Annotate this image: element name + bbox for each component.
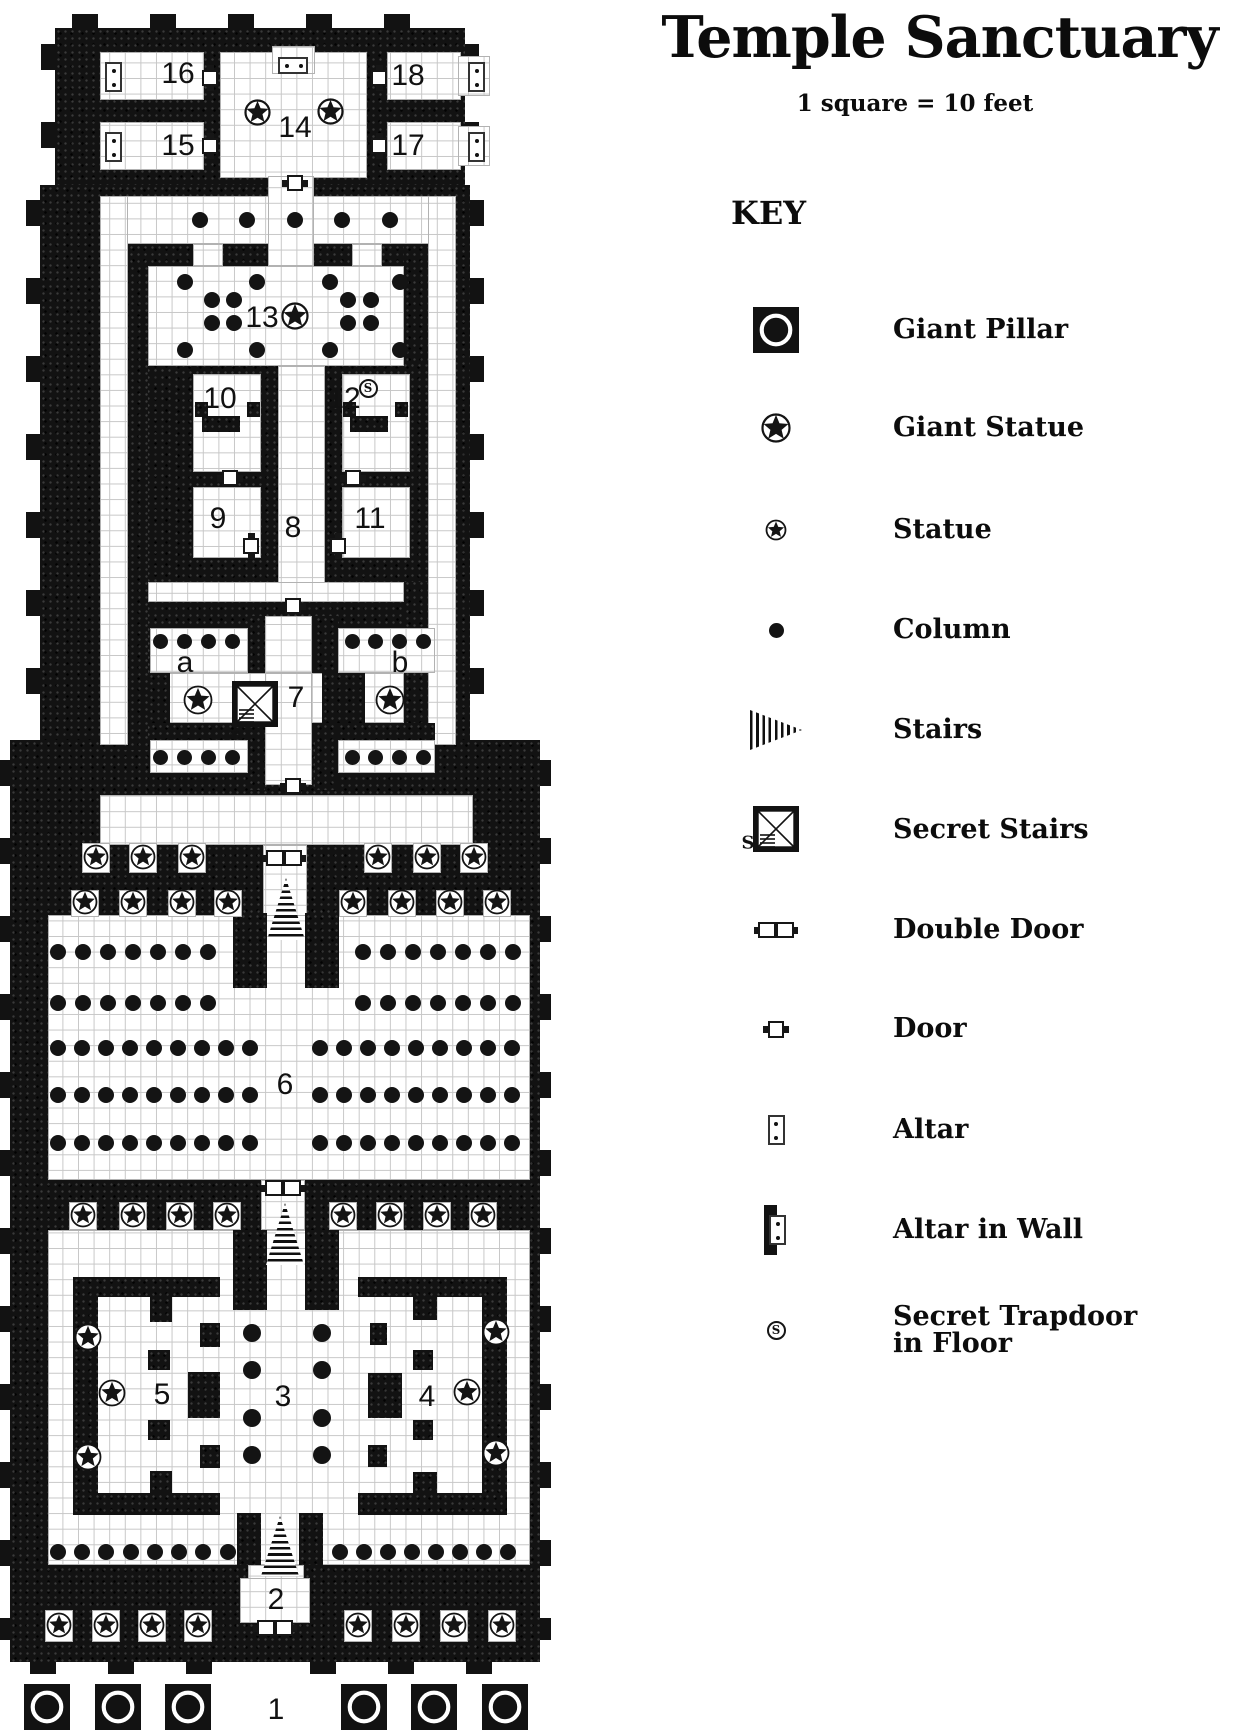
secret-trapdoor-icon: S	[359, 379, 378, 398]
wall-crenellation	[30, 1662, 240, 1674]
room-label-7: 7	[288, 681, 305, 715]
column-icon	[50, 995, 66, 1011]
door-stub	[248, 554, 255, 559]
statue-icon	[470, 1202, 496, 1228]
column-icon	[98, 1040, 114, 1056]
altar-icon	[105, 62, 122, 92]
key-label: Column	[893, 616, 1011, 643]
column-icon	[243, 1324, 261, 1342]
column-icon	[201, 750, 216, 765]
column-icon	[100, 944, 116, 960]
column-icon	[243, 1409, 261, 1427]
door-leaf	[243, 538, 259, 554]
door-icon	[345, 470, 361, 486]
column-icon	[194, 1087, 210, 1103]
wall	[248, 723, 265, 790]
giant-statue-icon	[244, 99, 271, 126]
column-icon	[355, 944, 371, 960]
giant-pillar-icon	[341, 1684, 387, 1730]
wall	[338, 723, 435, 740]
column-icon	[146, 1087, 162, 1103]
wall	[73, 1277, 98, 1515]
column-icon	[405, 995, 421, 1011]
column-icon	[153, 750, 168, 765]
statue-icon	[414, 844, 440, 870]
altar-icon	[105, 132, 122, 162]
door-stub	[303, 180, 308, 187]
door-icon	[763, 1021, 789, 1038]
column-icon	[313, 1409, 331, 1427]
door-stub	[376, 65, 383, 70]
statue-icon	[340, 889, 366, 915]
column-icon	[332, 1544, 348, 1560]
column-icon	[170, 1087, 186, 1103]
statue-icon	[139, 1612, 165, 1638]
giant-statue-icon	[761, 413, 791, 443]
column-icon	[504, 1087, 520, 1103]
wall	[315, 723, 338, 790]
stairs-icon	[750, 710, 802, 750]
door-stub	[207, 65, 214, 70]
wall	[322, 673, 365, 723]
column-icon	[480, 995, 496, 1011]
column-icon	[456, 1040, 472, 1056]
key-label: Secret Trapdoorin Floor	[893, 1303, 1137, 1357]
door-leaf	[257, 1620, 275, 1636]
column-icon	[416, 634, 431, 649]
door-stub	[340, 475, 345, 482]
room-label-9: 9	[210, 502, 227, 536]
column-icon	[200, 944, 216, 960]
statue-icon	[167, 1202, 193, 1228]
column-icon	[192, 212, 208, 228]
column-icon	[242, 1135, 258, 1151]
wall-crenellation	[310, 1662, 525, 1674]
column-icon	[455, 995, 471, 1011]
key-label-text: Secret Stairs	[893, 816, 1089, 843]
floor	[352, 244, 382, 266]
column-icon	[249, 274, 265, 290]
column-icon	[150, 944, 166, 960]
double-door-icon	[262, 850, 306, 866]
door-stub	[301, 1185, 305, 1192]
secret-stairs-icon	[753, 806, 799, 854]
altar-dot	[776, 1236, 780, 1240]
column-icon	[408, 1135, 424, 1151]
wall	[413, 1297, 437, 1320]
column-icon	[100, 995, 116, 1011]
column-icon	[404, 1544, 420, 1560]
dungeon-map: S16151418171310129811ab7653421sS	[0, 0, 560, 1736]
door-leaf	[285, 778, 301, 794]
wall	[150, 1471, 172, 1493]
column-icon	[360, 1040, 376, 1056]
statue-icon	[375, 685, 405, 715]
giant-pillar-icon	[165, 1684, 211, 1730]
altar-dot	[475, 69, 479, 73]
column-icon	[150, 995, 166, 1011]
statue-icon	[130, 844, 156, 870]
column-icon	[312, 1135, 328, 1151]
statue-icon	[393, 1612, 419, 1638]
door-leaf	[222, 470, 238, 486]
door-stub	[207, 133, 214, 138]
altar-dot	[112, 69, 116, 73]
column-icon	[74, 1135, 90, 1151]
statue-icon	[441, 1612, 467, 1638]
key-label-text: in Floor	[893, 1330, 1137, 1357]
statue-icon	[98, 1379, 126, 1407]
column-icon	[456, 1087, 472, 1103]
column-icon	[392, 750, 407, 765]
door-leaf	[266, 850, 284, 866]
statue-icon	[169, 889, 195, 915]
door-leaf	[202, 70, 218, 86]
door-stub	[293, 1625, 297, 1632]
column-icon	[455, 944, 471, 960]
door-leaf	[768, 1021, 784, 1038]
map-scale-note: 1 square = 10 feet	[620, 90, 1210, 117]
column-icon	[432, 1135, 448, 1151]
column-icon	[75, 995, 91, 1011]
column-icon	[226, 315, 242, 331]
column-icon	[249, 342, 265, 358]
wall-crenellation	[540, 760, 551, 1640]
column-icon	[194, 1135, 210, 1151]
altar-dot	[299, 64, 303, 68]
key-label: Door	[893, 1015, 967, 1042]
wall	[150, 1297, 172, 1322]
door-stub	[335, 533, 342, 538]
column-icon	[430, 995, 446, 1011]
key-label: Statue	[893, 516, 992, 543]
floor	[193, 244, 223, 266]
wall	[370, 1323, 387, 1345]
column-icon	[98, 1087, 114, 1103]
column-icon	[287, 212, 303, 228]
column-icon	[360, 1087, 376, 1103]
wall	[188, 1372, 220, 1418]
door-leaf	[265, 1180, 283, 1196]
column-icon	[122, 1040, 138, 1056]
room-label-14: 14	[278, 111, 311, 145]
statue-icon	[120, 889, 146, 915]
door-leaf	[275, 1620, 293, 1636]
statue-icon	[214, 1202, 240, 1228]
altar-icon	[768, 1115, 785, 1145]
column-icon	[380, 1544, 396, 1560]
altar-dot	[112, 153, 116, 157]
column-icon	[336, 1087, 352, 1103]
column-icon	[360, 1135, 376, 1151]
giant-statue-icon	[317, 98, 344, 125]
wall	[315, 616, 338, 673]
column-icon	[355, 995, 371, 1011]
column-icon	[476, 1544, 492, 1560]
door-leaf	[283, 1180, 301, 1196]
wall	[233, 1230, 267, 1310]
door-leaf	[284, 850, 302, 866]
key-label-text: Stairs	[893, 716, 982, 743]
altar-dot	[285, 64, 289, 68]
altar-icon	[468, 132, 485, 162]
column-icon	[74, 1040, 90, 1056]
column-icon	[74, 1544, 90, 1560]
altar-dot	[774, 1122, 778, 1126]
column-icon	[312, 1040, 328, 1056]
statue-icon	[74, 1443, 102, 1471]
statue-icon	[437, 889, 463, 915]
door-leaf	[371, 70, 387, 86]
door-stub	[301, 603, 306, 610]
column-icon	[336, 1040, 352, 1056]
column-icon	[336, 1135, 352, 1151]
double-door-icon	[754, 922, 798, 938]
column-icon	[218, 1087, 234, 1103]
column-icon	[500, 1544, 516, 1560]
door-stub	[280, 603, 285, 610]
statue-icon	[93, 1612, 119, 1638]
room-label-10: 10	[203, 382, 236, 416]
statue-icon	[74, 1323, 102, 1351]
column-icon	[220, 1544, 236, 1560]
wall	[413, 1350, 433, 1370]
column-icon	[177, 274, 193, 290]
wall-crenellation	[470, 200, 484, 730]
room-label-15: 15	[161, 129, 194, 163]
key-label: Altar in Wall	[893, 1216, 1083, 1243]
door-stub	[794, 927, 798, 934]
door-icon	[285, 778, 301, 794]
door-stub	[238, 475, 243, 482]
door-stub	[361, 475, 366, 482]
wall	[350, 416, 388, 432]
column-icon	[430, 944, 446, 960]
column-icon	[392, 342, 408, 358]
wall	[305, 913, 339, 988]
room-label-6: 6	[277, 1068, 294, 1102]
column-icon	[392, 274, 408, 290]
column-icon	[505, 944, 521, 960]
column-icon	[125, 944, 141, 960]
column-icon	[218, 1135, 234, 1151]
column-icon	[122, 1135, 138, 1151]
column-icon	[313, 1324, 331, 1342]
room-label-16: 16	[161, 57, 194, 91]
wall	[73, 1493, 220, 1515]
column-icon	[239, 212, 255, 228]
wall	[482, 1277, 507, 1515]
wall	[413, 1472, 437, 1493]
key-label-text: Giant Pillar	[893, 316, 1068, 343]
column-icon	[345, 750, 360, 765]
column-icon	[177, 342, 193, 358]
door-leaf	[345, 470, 361, 486]
column-icon	[313, 1446, 331, 1464]
room-label-5: 5	[154, 1378, 171, 1412]
room-label-b: b	[392, 646, 409, 680]
statue-icon	[183, 685, 213, 715]
column-icon	[153, 634, 168, 649]
door-stub	[376, 154, 383, 159]
column-icon	[382, 212, 398, 228]
statue-icon	[46, 1612, 72, 1638]
wall	[395, 402, 408, 417]
column-icon	[356, 1544, 372, 1560]
altar-dot	[112, 139, 116, 143]
column-icon	[505, 995, 521, 1011]
room-label-17: 17	[391, 129, 424, 163]
column-icon	[322, 342, 338, 358]
altar-in-wall-icon	[764, 1205, 788, 1255]
door-icon	[371, 70, 387, 86]
column-icon	[405, 944, 421, 960]
column-icon	[504, 1135, 520, 1151]
room-label-s: s	[224, 730, 245, 740]
wall	[299, 1513, 323, 1565]
column-icon	[416, 750, 431, 765]
column-icon	[122, 1087, 138, 1103]
room-label-13: 13	[245, 301, 278, 335]
key-label-text: Double Door	[893, 916, 1083, 943]
statue-icon	[482, 1318, 510, 1346]
column-icon	[312, 1087, 328, 1103]
room-label-8: 8	[285, 511, 302, 545]
statue-icon	[365, 844, 391, 870]
door-icon	[287, 175, 303, 191]
giant-pillar-icon	[24, 1684, 70, 1730]
statue-icon	[330, 1202, 356, 1228]
column-icon	[432, 1087, 448, 1103]
column-icon	[480, 944, 496, 960]
column-icon	[218, 1040, 234, 1056]
wall	[148, 673, 170, 723]
door-stub	[207, 86, 214, 91]
secret-trapdoor-icon: S	[767, 1321, 786, 1340]
wall-crenellation	[0, 760, 11, 1640]
statue-icon	[70, 1202, 96, 1228]
double-door-icon	[253, 1620, 297, 1636]
statue-icon	[484, 889, 510, 915]
column-icon	[123, 1544, 139, 1560]
room-label-12: 12	[327, 382, 360, 416]
door-icon	[202, 138, 218, 154]
column-icon	[175, 995, 191, 1011]
column-icon	[432, 1040, 448, 1056]
statue-icon	[765, 519, 787, 541]
floor	[148, 582, 404, 602]
door-icon	[371, 138, 387, 154]
key-label-text: Altar	[893, 1116, 968, 1143]
column-icon	[384, 1087, 400, 1103]
column-icon	[170, 1040, 186, 1056]
wall	[248, 616, 265, 673]
column-icon	[171, 1544, 187, 1560]
door-leaf	[287, 175, 303, 191]
door-stub	[301, 783, 306, 790]
statue-icon	[185, 1612, 211, 1638]
door-stub	[207, 154, 214, 159]
room-label-1: 1	[268, 1693, 285, 1727]
column-icon	[368, 634, 383, 649]
wall	[247, 402, 260, 417]
column-icon	[322, 274, 338, 290]
column-icon	[340, 315, 356, 331]
trapdoor-icon: S	[767, 1321, 786, 1340]
column-icon	[75, 944, 91, 960]
column-icon	[504, 1040, 520, 1056]
column-icon	[380, 995, 396, 1011]
door-stub	[217, 475, 222, 482]
room-label-11: 11	[354, 502, 385, 536]
column-icon	[313, 1361, 331, 1379]
column-icon	[480, 1040, 496, 1056]
statue-icon	[83, 844, 109, 870]
statue-icon	[120, 1202, 146, 1228]
column-icon	[74, 1087, 90, 1103]
column-icon	[98, 1135, 114, 1151]
altar-dot	[776, 1222, 780, 1226]
altar-icon	[769, 1215, 786, 1245]
door-leaf	[330, 538, 346, 554]
column-icon	[243, 1446, 261, 1464]
key-label: Double Door	[893, 916, 1083, 943]
wall	[368, 1373, 402, 1418]
page-title: Temple Sanctuary	[640, 4, 1239, 71]
key-heading: KEY	[731, 194, 806, 232]
altar-dot	[112, 83, 116, 87]
altar-dot	[475, 83, 479, 87]
column-icon	[225, 750, 240, 765]
statue-icon	[489, 1612, 515, 1638]
statue-icon	[179, 844, 205, 870]
door-leaf	[202, 138, 218, 154]
column-icon	[177, 750, 192, 765]
key-label: Secret Stairs	[893, 816, 1089, 843]
temple-sanctuary-page: S16151418171310129811ab7653421sS Temple …	[0, 0, 1239, 1736]
room-label-2: 2	[268, 1583, 285, 1617]
column-icon	[125, 995, 141, 1011]
giant-pillar-icon	[95, 1684, 141, 1730]
key-label-text: Column	[893, 616, 1011, 643]
giant-pillar-icon	[411, 1684, 457, 1730]
room-label-18: 18	[391, 59, 424, 93]
statue-icon	[453, 1378, 481, 1406]
key-label-text: Door	[893, 1015, 967, 1042]
column-icon	[204, 315, 220, 331]
wall	[200, 1445, 220, 1468]
column-icon	[340, 292, 356, 308]
wall-crenellation	[72, 14, 448, 28]
wall	[148, 1350, 170, 1370]
double-door-icon	[261, 1180, 305, 1196]
column-icon	[146, 1040, 162, 1056]
column-icon	[50, 1040, 66, 1056]
statue-icon	[389, 889, 415, 915]
statue-icon	[215, 889, 241, 915]
door-stub	[282, 180, 287, 187]
statue-icon	[345, 1612, 371, 1638]
column-icon	[363, 292, 379, 308]
column-icon	[50, 944, 66, 960]
altar-dot	[774, 1136, 778, 1140]
giant-statue-icon	[281, 302, 309, 330]
column-icon	[345, 634, 360, 649]
column-icon	[480, 1087, 496, 1103]
floor	[100, 795, 473, 845]
column-icon	[226, 292, 242, 308]
door-stub	[335, 554, 342, 559]
